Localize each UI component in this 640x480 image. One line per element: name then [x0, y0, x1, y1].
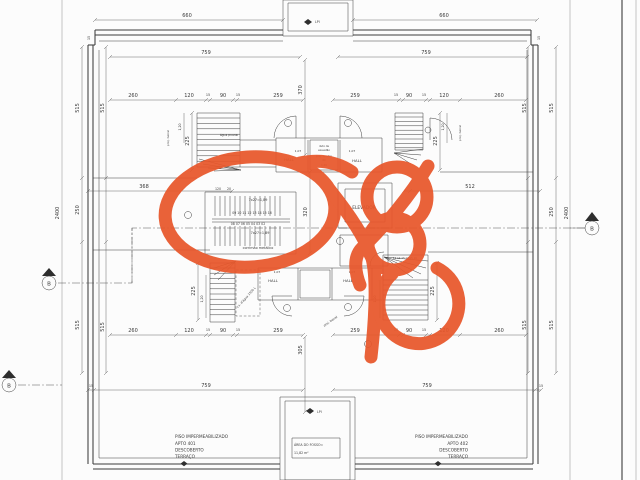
dim-label: 260 — [128, 328, 138, 334]
section-marker-b-right: B — [570, 212, 599, 235]
dim-label: 759 — [201, 50, 211, 56]
apartment-right-text-block: PISO IMPERMEABILIZADO APTO 402 DESCOBERT… — [415, 434, 469, 459]
dim-label: 225 — [430, 286, 436, 296]
dim-label: 120 — [215, 187, 221, 191]
dim-label: 2400 — [564, 207, 570, 220]
dim-label: 515 — [100, 103, 106, 113]
dim-label: 515 — [100, 322, 106, 332]
dim-label: 512 — [465, 184, 475, 190]
apt-note-line: PISO IMPERMEABILIZADO — [175, 434, 229, 439]
roof-access-box-top — [283, 0, 353, 36]
dimension-lines — [80, 18, 558, 414]
dim-label: 259 — [350, 328, 360, 334]
dim-label: 225 — [433, 136, 439, 146]
dim-label: 15 — [236, 328, 240, 332]
dim-label: 515 — [522, 103, 528, 113]
floor-plan-canvas: B B B 660 660 759 759 260 120 15 90 15 2… — [0, 0, 640, 480]
fosso-title: ÁREA DO FOSSO= — [294, 442, 323, 447]
fosso-area-text: ÁREA DO FOSSO= 11,82 m² — [294, 442, 323, 455]
dim-label: 15 — [422, 328, 426, 332]
dim-label: 260 — [128, 93, 138, 99]
dim-label: 259 — [273, 93, 283, 99]
handrail-label: corrimão metálico — [243, 246, 274, 250]
marker-circle-bottom-right-stair — [379, 268, 459, 344]
dim-label: 759 — [201, 383, 211, 389]
stair-step-numbers: 09 10 11 12 13 14 15 16 — [232, 211, 272, 215]
dim-label: 660 — [182, 13, 192, 19]
stair-top-right — [394, 113, 423, 164]
dim-label: 1,20 — [441, 123, 445, 130]
dim-label: 15 — [394, 93, 398, 97]
eave-projection-label: proj. beiral — [323, 315, 339, 328]
dim-label: 1,20 — [178, 123, 182, 130]
apt-note-line: TERRAÇO — [174, 454, 196, 459]
dim-label: 368 — [139, 184, 149, 190]
dim-label: 90 — [406, 328, 412, 334]
dim-label: 515 — [549, 103, 555, 113]
hall-height-label: 1,07 — [349, 149, 356, 153]
dim-label: 90 — [220, 93, 226, 99]
duct-label: duto de — [319, 144, 329, 148]
dim-label: 515 — [75, 320, 81, 330]
stair-formula-label: 7x27=1,89 — [251, 231, 270, 235]
dim-label: 2400 — [55, 207, 61, 220]
dim-label: 260 — [494, 328, 504, 334]
hall-height-label: 1,07 — [295, 149, 302, 153]
dim-label: 20 — [227, 187, 231, 191]
dim-label: 120 — [184, 93, 194, 99]
dim-label: 660 — [439, 13, 449, 19]
dim-label: 15 — [87, 36, 91, 40]
dim-label: 370 — [298, 85, 304, 95]
dim-label: 15 — [537, 36, 541, 40]
section-label: B — [47, 282, 51, 288]
hall-label: HALL — [352, 158, 363, 163]
eave-projection-label: proj. beiral — [166, 130, 170, 146]
eave-projection-label: proj. beiral — [458, 125, 462, 141]
dim-label: 260 — [494, 93, 504, 99]
dim-label: 515 — [75, 103, 81, 113]
rainwater-label: água pluvial — [220, 133, 239, 137]
dim-label: 250 — [75, 205, 81, 215]
dim-label: 259 — [350, 93, 360, 99]
floor-plan-page: B B B 660 660 759 759 260 120 15 90 15 2… — [0, 0, 640, 480]
section-marker-b-lower-left: B — [2, 370, 16, 392]
apartment-left-text-block: PISO IMPERMEABILIZADO APTO 401 DESCOBERT… — [174, 434, 229, 459]
apt-note-line: DESCOBERTO — [439, 448, 468, 453]
dim-label: 250 — [549, 207, 555, 217]
dim-label: 15 — [422, 93, 426, 97]
dim-label: 225 — [191, 286, 197, 296]
dim-label: 759 — [421, 50, 431, 56]
dim-label: 259 — [273, 328, 283, 334]
dim-label: 320 — [303, 207, 309, 217]
sheet-border-lines — [62, 0, 636, 480]
section-label: B — [7, 384, 11, 390]
apt-note-line: DESCOBERTO — [175, 448, 204, 453]
hall-height-label: 1,07 — [274, 270, 281, 274]
water-tank-label: cx. d'água 1500 L — [236, 286, 257, 309]
dim-label: 759 — [422, 383, 432, 389]
section-marker-b-left: B — [42, 268, 56, 290]
apt-note-line: PISO IMPERMEABILIZADO — [415, 434, 469, 439]
section-label: B — [590, 227, 594, 233]
apt-number: APTO 402 — [447, 441, 468, 446]
dim-label: 15 — [236, 93, 240, 97]
stair-formula-label: 7x27=1,89 — [249, 198, 268, 202]
dim-label: 15 — [206, 93, 210, 97]
dim-label: 90 — [406, 93, 412, 99]
dim-label: 305 — [298, 345, 304, 355]
stair-step-numbers: 08 07 06 05 04 03 02 — [231, 222, 265, 226]
lpi-label: LPI — [315, 20, 320, 24]
duct-label: exaustão — [318, 148, 330, 152]
dim-label: 15 — [89, 384, 93, 388]
dimension-labels: 660 660 759 759 260 120 15 90 15 259 259… — [55, 13, 570, 389]
dim-label: 515 — [549, 320, 555, 330]
dim-label: 120 — [439, 93, 449, 99]
apt-note-line: TERRAÇO — [447, 454, 469, 459]
dim-label: 225 — [185, 136, 191, 146]
dim-label: 15 — [539, 384, 543, 388]
apt-number: APTO 401 — [175, 441, 196, 446]
lpi-label: LPI — [317, 410, 322, 414]
hall-label: HALL — [268, 278, 279, 283]
dim-label: 1,20 — [200, 295, 204, 302]
dim-label: 120 — [184, 328, 194, 334]
fosso-value: 11,82 m² — [294, 451, 309, 455]
dim-label: 15 — [206, 328, 210, 332]
dim-label: 515 — [522, 320, 528, 330]
dim-label: 90 — [220, 328, 226, 334]
